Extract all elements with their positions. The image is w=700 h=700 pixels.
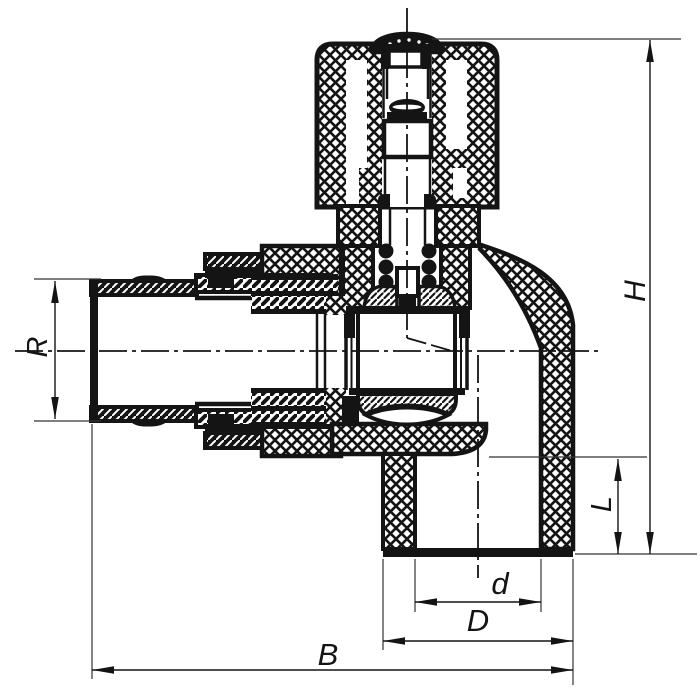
svg-text:D: D: [467, 603, 489, 638]
svg-text:L: L: [586, 496, 618, 512]
svg-text:d: d: [491, 566, 510, 601]
svg-text:H: H: [619, 280, 652, 302]
svg-text:B: B: [318, 637, 339, 672]
svg-text:R: R: [22, 336, 54, 357]
